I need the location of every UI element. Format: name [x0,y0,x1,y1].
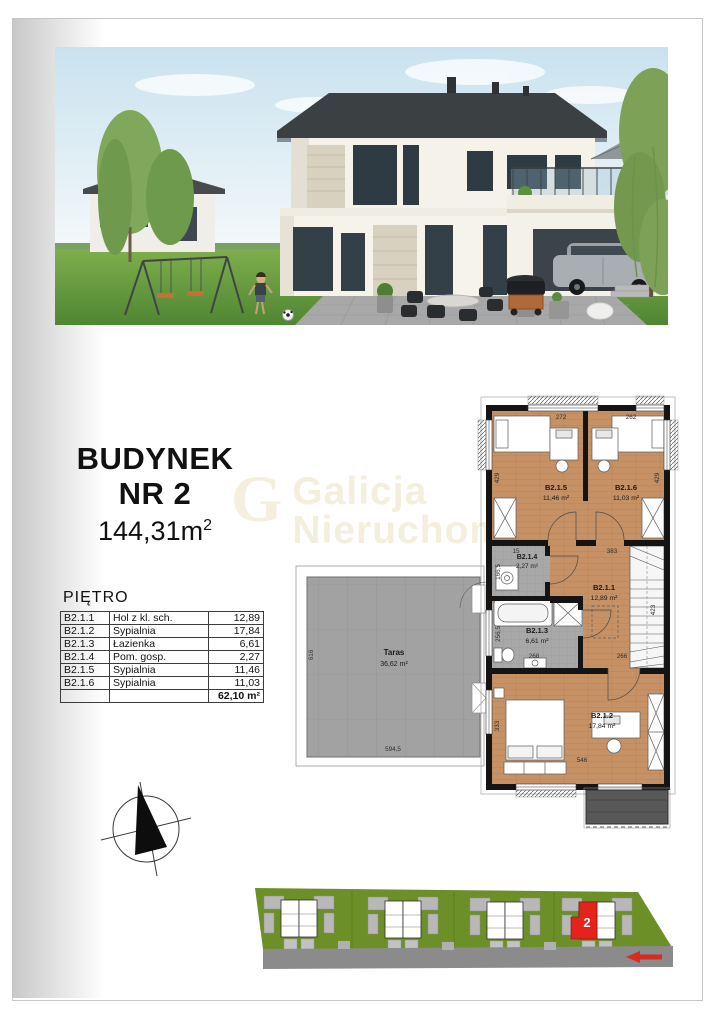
building-title-line2: NR 2 [56,477,254,512]
room-code: B2.1.4 [61,651,110,664]
dim-label: 383 [607,548,618,555]
dim-label: 266 [617,653,628,660]
floor-table-header: PIĘTRO [63,589,129,607]
room-area-taras: 36,62 m² [380,661,408,668]
dim-label: 166,5 [495,564,502,580]
room-code: B2.1.5 [61,664,110,677]
room-label-taras: Taras [384,648,405,657]
room-area: 17,84 [209,625,264,638]
dim-label: 594,5 [385,746,401,753]
room-area: 6,61 [209,638,264,651]
bed-icon [504,700,566,774]
room-label-b212: B2.1.2 [591,711,613,720]
listing-page: { "title_block": { "line1": "BUDYNEK", "… [0,0,724,1024]
building-title-line1: BUDYNEK [56,442,254,477]
compass-rose [96,776,196,880]
north-arrow [135,785,167,855]
bathtub-icon [494,600,552,626]
stone-accent-upper [307,145,345,208]
room-name: Łazienka [110,638,209,651]
foreground-tree-left [98,139,132,255]
table-row: B2.1.2 Sypialnia 17,84 [61,625,264,638]
steps [611,285,653,297]
table-total-row: 62,10 m² [61,690,264,703]
room-label-b213: B2.1.3 [526,626,548,635]
room-code: B2.1.3 [61,638,110,651]
dim-label: 268 [529,653,540,660]
table-row: B2.1.6 Sypialnia 11,03 [61,677,264,690]
dim-label: 15 [512,548,520,555]
room-label-b215: B2.1.5 [545,483,567,492]
room-area: 11,03 [209,677,264,690]
wardrobe-icon [494,498,516,538]
table-row: B2.1.5 Sypialnia 11,46 [61,664,264,677]
room-label-b211: B2.1.1 [593,583,615,592]
dim-label: 429 [654,472,661,483]
total-area: 62,10 m² [209,690,264,703]
room-area-b213: 6,61 m² [525,638,549,645]
room-name: Sypialnia [110,677,209,690]
toilet-icon [494,648,514,662]
highlighted-unit-number: 2 [583,915,590,930]
room-area: 12,89 [209,612,264,625]
dim-label: 423 [650,604,657,615]
table-row: B2.1.3 Łazienka 6,61 [61,638,264,651]
room-area: 11,46 [209,664,264,677]
room-name: Hol z kl. sch. [110,612,209,625]
room-area-b212: 17,84 m² [589,723,617,730]
soccer-ball [283,310,294,321]
hip-roof [277,93,607,138]
room-area-b215: 11,46 m² [543,495,570,502]
house-rendering [55,47,668,325]
dim-label: 546 [577,757,588,764]
bbq-grill [506,275,545,316]
wardrobe-icon [642,498,664,538]
dim-label: 429 [494,472,501,483]
room-label-b214: B2.1.4 [517,554,538,561]
floor-rooms-table: B2.1.1 Hol z kl. sch. 12,89 B2.1.2 Sypia… [60,611,264,703]
dim-label: 272 [556,414,567,421]
nightstand-icon [494,688,504,698]
floor-plan: B2.1.5 11,46 m² B2.1.6 11,03 m² B2.1.4 2… [283,383,690,843]
road [263,946,673,969]
table-row: B2.1.4 Pom. gosp. 2,27 [61,651,264,664]
wardrobe-icon [648,694,664,770]
table-row: B2.1.1 Hol z kl. sch. 12,89 [61,612,264,625]
dim-label: 262 [626,414,637,421]
pouf [587,303,613,319]
dim-label: 256,5 [495,626,502,642]
room-name: Pom. gosp. [110,651,209,664]
room-area: 2,27 [209,651,264,664]
room-name: Sypialnia [110,664,209,677]
building-total-area: 144,31m2 [56,516,254,547]
dim-label: 616 [308,649,315,660]
room-code: B2.1.6 [61,677,110,690]
shower-icon [554,600,582,626]
room-code: B2.1.2 [61,625,110,638]
balcony [584,788,670,828]
room-label-b216: B2.1.6 [615,483,637,492]
room-area-b216: 11,03 m² [613,495,640,502]
room-area-b211: 12,89 m² [591,595,619,602]
staircase [630,546,664,668]
title-block: BUDYNEK NR 2 144,31m2 [56,442,254,547]
room-code: B2.1.1 [61,612,110,625]
room-name: Sypialnia [110,625,209,638]
dim-label: 333 [494,720,501,731]
room-area-b214: 2,27 m² [516,563,539,570]
site-plan: 2 [250,880,690,980]
